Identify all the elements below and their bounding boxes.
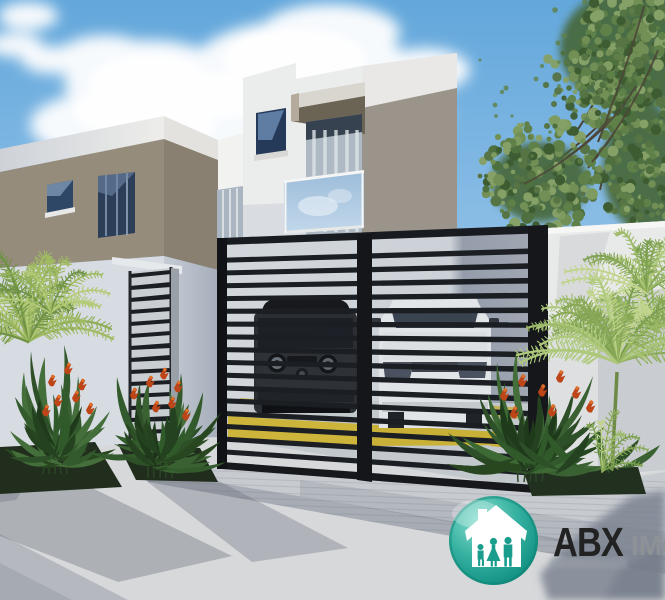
- svg-text:IMO: IMO: [631, 530, 665, 561]
- svg-text:ABX: ABX: [553, 519, 624, 565]
